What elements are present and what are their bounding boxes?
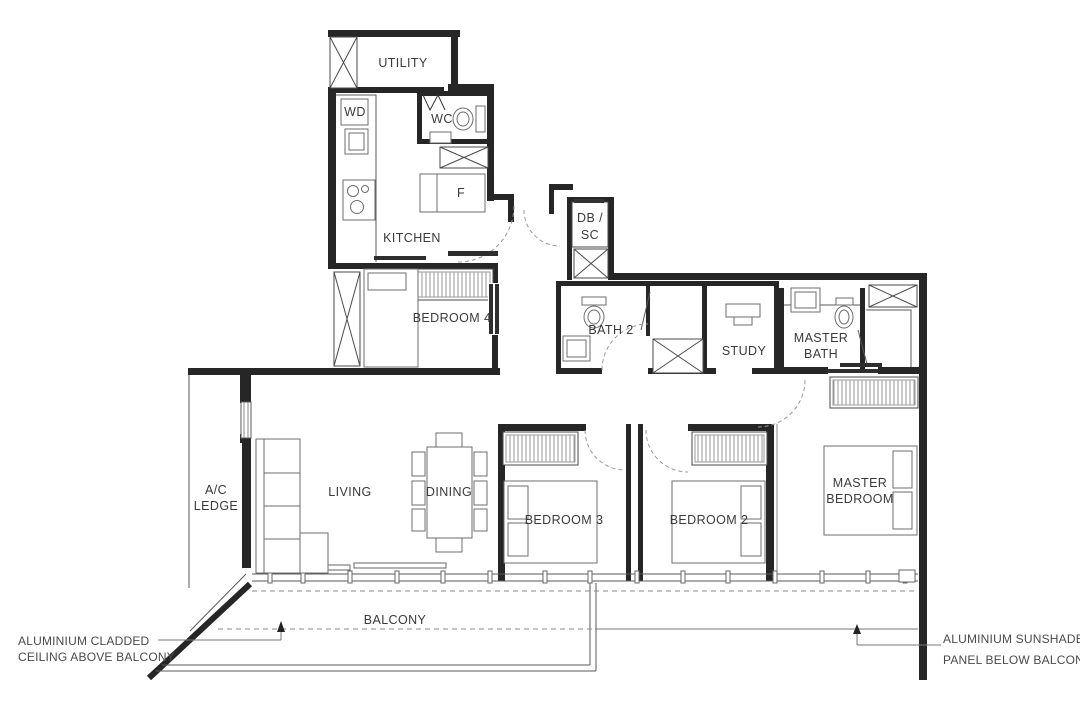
annotation-balcony-ceiling-1: ALUMINIUM CLADDED [18,634,150,648]
label-fridge: F [457,186,465,200]
annotation-sunshade-2: PANEL BELOW BALCONY [943,653,1080,667]
label-ac-ledge-2: LEDGE [194,499,238,513]
label-bath2: BATH 2 [588,323,633,337]
master-bath-fixtures [791,288,853,328]
leader-left [158,621,285,640]
thin-structure-lines [156,95,911,671]
window-line [252,563,918,583]
label-db-sc-1: DB / [577,211,603,225]
label-bedroom3: BEDROOM 3 [525,513,604,527]
label-study: STUDY [722,344,767,358]
annotation-sunshade-1: ALUMINIUM SUNSHADE [943,632,1080,646]
label-living: LIVING [328,485,371,499]
label-dining: DINING [426,485,472,499]
label-utility: UTILITY [378,56,428,70]
balcony-overhead-lines [218,591,918,629]
sofa [256,439,328,573]
label-master-bedroom-2: BEDROOM [826,492,893,506]
label-master-bath-2: BATH [804,347,838,361]
floor-plan-page: UTILITY WD WC F KITCHEN DB / SC BEDROOM … [0,0,1080,710]
study-desk [726,304,760,325]
label-bedroom4: BEDROOM 4 [413,311,492,325]
label-wd: WD [344,105,366,119]
label-master-bath-1: MASTER [794,331,849,345]
label-kitchen: KITCHEN [383,231,441,245]
annotation-balcony-ceiling-2: CEILING ABOVE BALCONY [18,650,175,664]
wc-folding-door [423,95,445,110]
floor-plan-canvas: UTILITY WD WC F KITCHEN DB / SC BEDROOM … [0,0,1080,710]
label-balcony: BALCONY [364,613,427,627]
label-db-sc-2: SC [581,228,599,242]
ac-ledge-window [241,402,251,438]
label-wc: WC [431,112,453,126]
leader-right [853,624,941,645]
label-bedroom2: BEDROOM 2 [670,513,749,527]
label-master-bedroom-1: MASTER [833,476,888,490]
label-ac-ledge-1: A/C [205,483,227,497]
